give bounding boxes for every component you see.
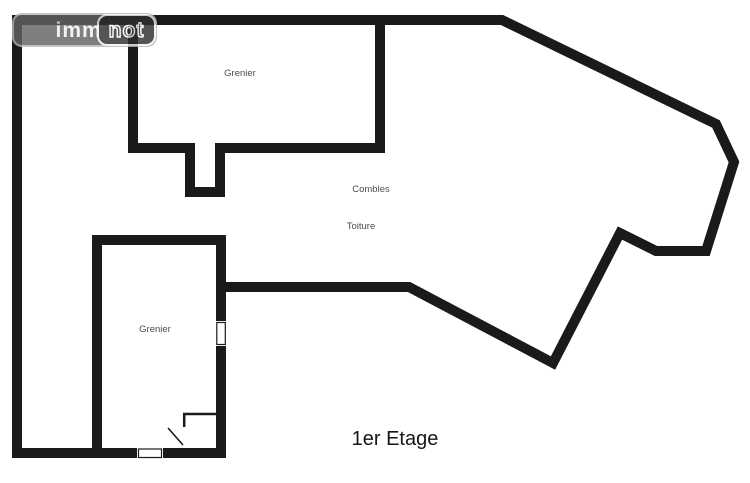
lower-grenier-walls	[97, 240, 221, 453]
immonot-logo-not-box: not	[97, 14, 156, 46]
floor-plan-drawing: Grenier Combles Toiture Grenier 1er Etag…	[0, 0, 750, 483]
upper-grenier-walls	[133, 20, 380, 192]
immonot-logo-not-text: not	[109, 20, 145, 41]
room-label-grenier-upper: Grenier	[224, 68, 256, 79]
room-label-grenier-lower: Grenier	[139, 324, 171, 335]
floor-title: 1er Etage	[352, 428, 439, 450]
closet-partition	[168, 413, 217, 445]
window-right-wall	[215, 321, 228, 346]
room-label-toiture: Toiture	[347, 221, 376, 232]
window-bottom-wall	[137, 447, 163, 459]
immonot-logo: immo not	[12, 13, 157, 47]
floor-plan-page: Grenier Combles Toiture Grenier 1er Etag…	[0, 0, 750, 483]
room-label-combles: Combles	[352, 184, 390, 195]
door-leaf	[168, 428, 183, 445]
